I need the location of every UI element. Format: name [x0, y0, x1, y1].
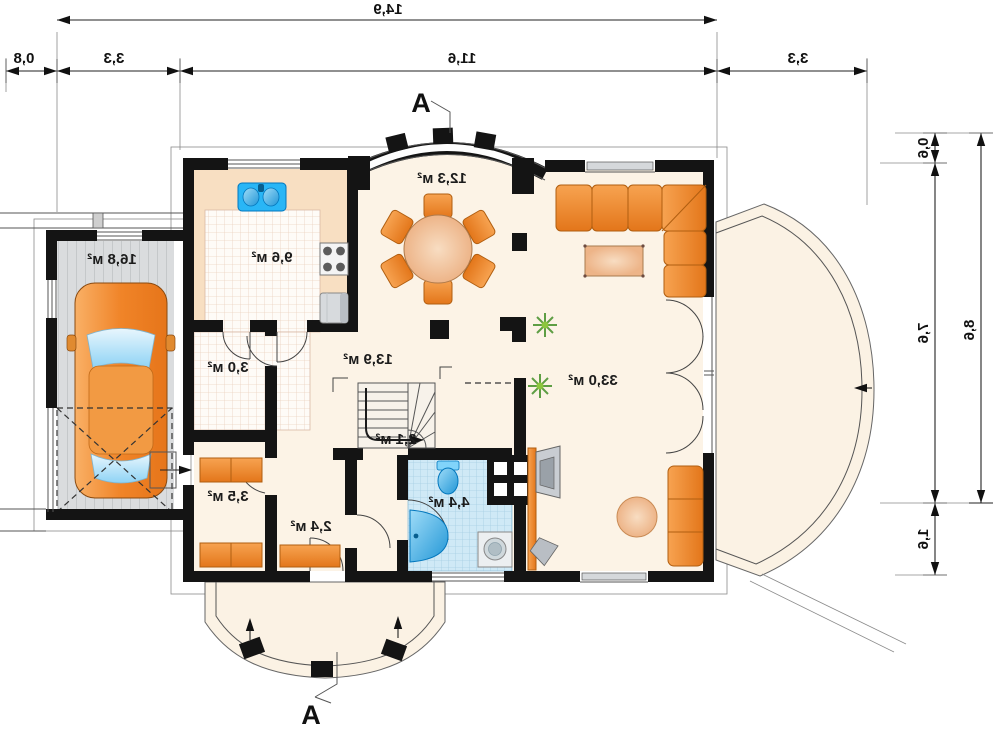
floor-kitchen-tiles	[205, 210, 320, 332]
washing-machine-icon	[478, 532, 512, 567]
dim-right-total: 8,6	[961, 320, 978, 341]
kitchen-sink-icon	[238, 183, 286, 211]
hall-area-label: 13,9 м²	[343, 351, 392, 368]
stove-icon	[320, 243, 348, 275]
dimension-lines-right: 0,6 7,6 1,6 8,6	[880, 133, 993, 575]
pillar	[430, 320, 449, 339]
dim-top-seg-1: 3,3	[104, 50, 125, 67]
wc-area-label: 3,0 м²	[207, 359, 248, 376]
wall-cabinet-icon	[668, 466, 703, 566]
corridor-area-label: 2,4 м²	[290, 518, 331, 535]
boiler-icon	[320, 293, 348, 323]
car-icon	[67, 283, 175, 498]
toilet-icon	[437, 461, 459, 494]
floor-wc-tiles	[194, 332, 310, 430]
porch-pillar	[311, 661, 333, 677]
dining-area-label: 12,3 м²	[417, 170, 466, 187]
pillar	[512, 233, 527, 251]
dim-top-seg-2: 11,6	[448, 50, 476, 67]
dim-top-seg-3: 3,3	[788, 50, 809, 67]
stairs-area-label: 2,1 м²	[375, 431, 416, 448]
coffee-table-icon	[583, 244, 644, 277]
living-area-label: 33,0 м²	[568, 372, 617, 389]
floor-plan-canvas: 16,8 м² 9,6 м² 3,0 м² 12,3 м² 13,9 м² 2,…	[0, 0, 1000, 732]
storage-area-label: 3,5 м²	[207, 488, 248, 505]
floor-plan-page: 16,8 м² 9,6 м² 3,0 м² 12,3 м² 13,9 м² 2,…	[0, 0, 1000, 732]
dim-top-total: 14,9	[373, 1, 402, 18]
terrace	[716, 204, 906, 652]
dim-right-seg-1: 7,6	[915, 323, 932, 344]
chair-icon	[424, 194, 452, 218]
dim-right-seg-0: 0,6	[915, 138, 932, 159]
entrance-porch	[205, 582, 445, 678]
bathroom-area-label: 4,4 м²	[428, 494, 469, 511]
section-marker-top: A	[411, 88, 450, 133]
dim-top-seg-0: 0,8	[14, 50, 35, 67]
entry-arrow-icon	[179, 466, 192, 474]
garage-area-label: 16,8 м²	[87, 251, 136, 268]
pouf-icon	[617, 497, 657, 537]
kitchen-area-label: 9,6 м²	[251, 249, 292, 266]
kitchen-window	[228, 160, 300, 168]
section-label-top: A	[411, 88, 431, 118]
dim-right-seg-2: 1,6	[915, 529, 932, 550]
chair-icon	[424, 280, 452, 304]
section-label-bottom: A	[301, 700, 321, 730]
